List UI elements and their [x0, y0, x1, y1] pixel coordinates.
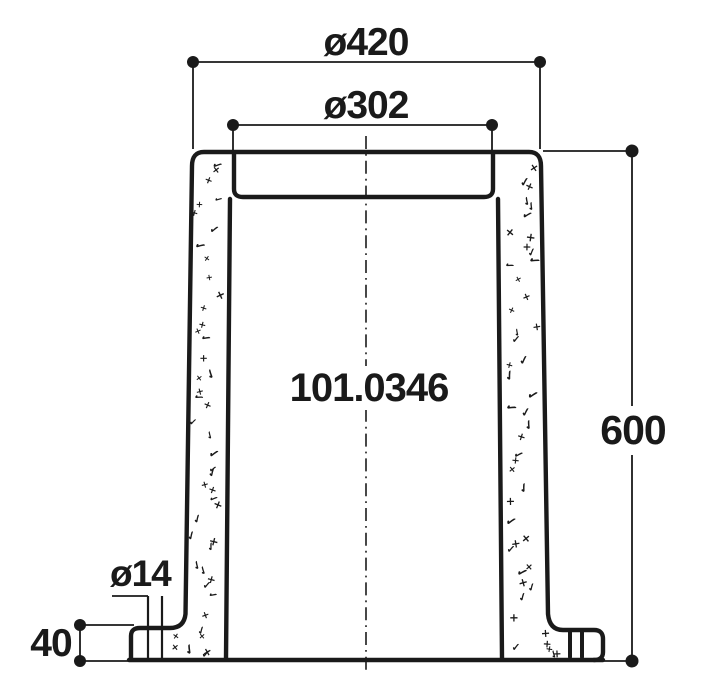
recess-profile [234, 154, 493, 197]
bore-diameter-label: ø302 [324, 86, 409, 125]
bore-wall-right [498, 199, 502, 658]
outer-diameter-label: ø420 [324, 23, 409, 62]
hole-diameter-label: ø14 [110, 555, 171, 592]
part-number-label: 101.0346 [280, 366, 459, 410]
technical-drawing-page: ✓×××✓×✓×✓✓×✓✓××✓×✓×✓✓×××××××××✓✓✓×✓×✓×✓×… [0, 0, 726, 681]
bore-wall-left [226, 199, 230, 658]
total-height-label: 600 [597, 406, 668, 455]
flange-height-label: 40 [24, 624, 78, 663]
